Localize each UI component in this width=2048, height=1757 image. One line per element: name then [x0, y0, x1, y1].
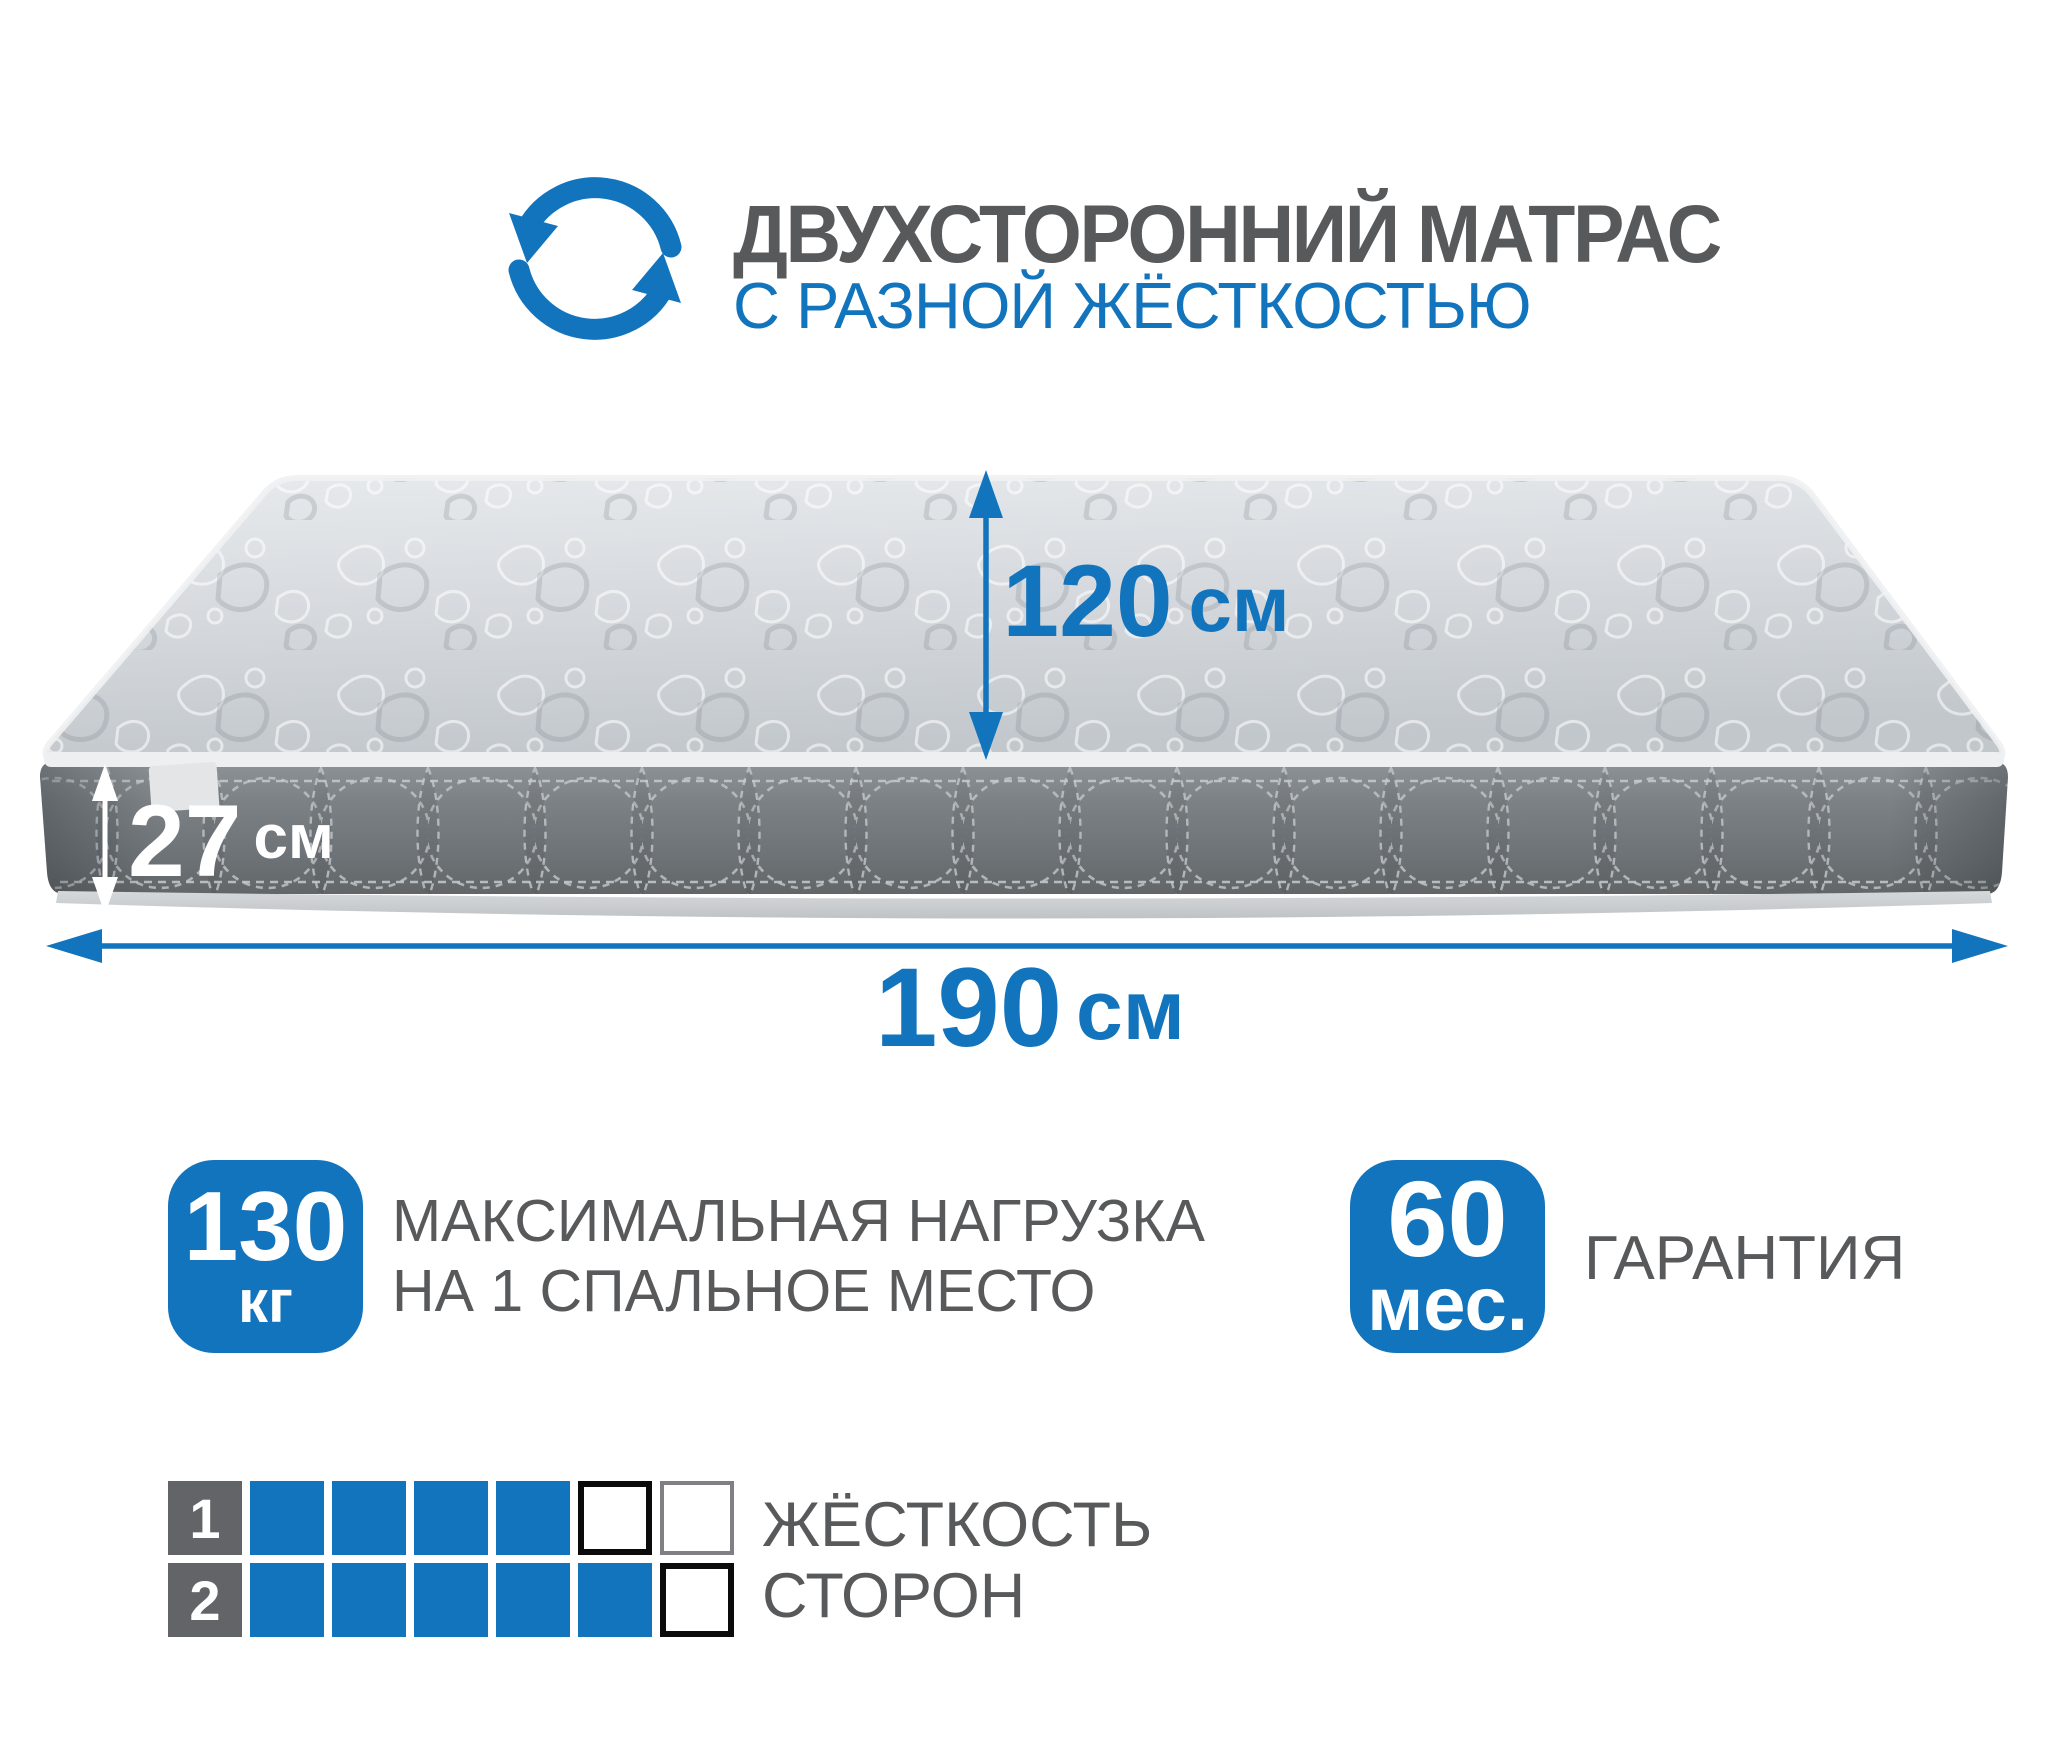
firmness-cell: [660, 1563, 734, 1637]
page-subtitle: С РАЗНОЙ ЖЁСТКОСТЬЮ: [733, 268, 1531, 343]
firmness-side-number: 1: [168, 1481, 242, 1555]
max-load-caption: МАКСИМАЛЬНАЯ НАГРУЗКА НА 1 СПАЛЬНОЕ МЕСТ…: [392, 1186, 1205, 1326]
firmness-caption-line1: ЖЁСТКОСТЬ: [762, 1490, 1152, 1561]
firmness-cell: [578, 1481, 652, 1555]
firmness-cells: [250, 1481, 734, 1555]
warranty-unit: мес.: [1367, 1267, 1528, 1343]
firmness-cell: [414, 1563, 488, 1637]
firmness-row-side1: 1: [168, 1481, 734, 1555]
warranty-caption: ГАРАНТИЯ: [1584, 1224, 1905, 1294]
max-load-caption-line1: МАКСИМАЛЬНАЯ НАГРУЗКА: [392, 1186, 1205, 1256]
width-dimension-label: 120см: [1002, 544, 1289, 658]
firmness-cell: [496, 1481, 570, 1555]
mattress-top-piping: [44, 752, 2004, 767]
firmness-cell: [250, 1563, 324, 1637]
warranty-value: 60: [1387, 1170, 1507, 1267]
firmness-cell: [660, 1481, 734, 1555]
firmness-cell: [496, 1563, 570, 1637]
firmness-side-number: 2: [168, 1563, 242, 1637]
max-load-value: 130: [184, 1181, 348, 1271]
warranty-badge: 60 мес.: [1350, 1160, 1545, 1353]
firmness-cell: [332, 1481, 406, 1555]
max-load-badge: 130 кг: [168, 1160, 363, 1353]
firmness-cell: [578, 1563, 652, 1637]
firmness-row-side2: 2: [168, 1563, 734, 1637]
rotate-arrows-icon: [478, 168, 708, 368]
max-load-caption-line2: НА 1 СПАЛЬНОЕ МЕСТО: [392, 1256, 1205, 1326]
mattress-bottom-piping: [56, 891, 1992, 919]
firmness-caption: ЖЁСТКОСТЬ СТОРОН: [762, 1490, 1152, 1632]
firmness-cells: [250, 1563, 734, 1637]
firmness-caption-line2: СТОРОН: [762, 1561, 1152, 1632]
length-dimension-label: 190см: [875, 945, 1185, 1070]
firmness-cell: [414, 1481, 488, 1555]
firmness-cell: [250, 1481, 324, 1555]
firmness-cell: [332, 1563, 406, 1637]
max-load-unit: кг: [238, 1272, 293, 1332]
